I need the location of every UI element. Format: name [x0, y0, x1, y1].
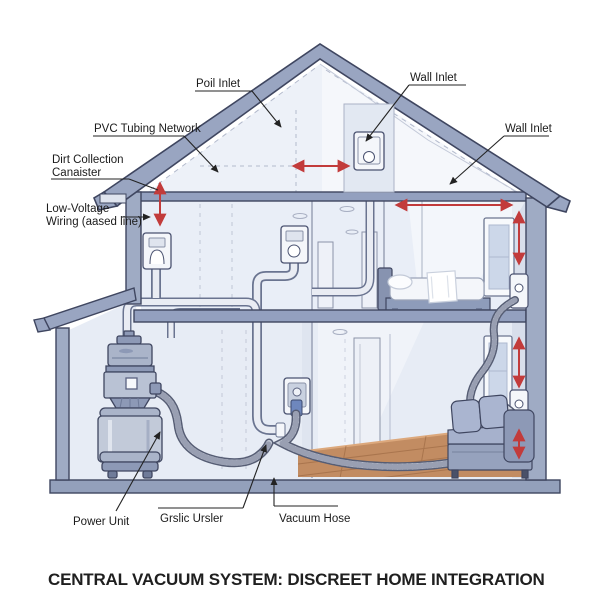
sofa-leg: [522, 470, 528, 478]
inlet-port: [150, 250, 164, 264]
label-grslic-ursler: Grslic Ursler: [160, 513, 223, 525]
sofa-back-cushion: [451, 399, 482, 433]
label-vacuum-hose: Vacuum Hose: [279, 513, 350, 525]
door-1f: [354, 338, 380, 458]
canister-ring: [100, 452, 160, 462]
wall-inlet-left-2f: [143, 233, 171, 269]
canister-base: [102, 462, 158, 471]
inlet-port: [288, 245, 300, 257]
diagram-title: CENTRAL VACUUM SYSTEM: DISCREET HOME INT…: [48, 570, 545, 589]
label-dirt-collection-1: Dirt Collection: [52, 154, 124, 166]
sofa-leg: [452, 470, 458, 478]
unit-indicator: [126, 378, 137, 389]
label-wall-inlet-top: Wall Inlet: [410, 72, 458, 84]
left-wall-extension: [56, 328, 69, 480]
unit-hose-port: [150, 383, 161, 394]
mid-floor-band: [134, 310, 526, 322]
inlet-port: [515, 284, 523, 292]
inlet-port: [364, 152, 375, 163]
label-wall-inlet-right: Wall Inlet: [505, 123, 553, 135]
inlet-port: [515, 400, 523, 408]
unit-motor-top: [108, 344, 152, 366]
door-2f-a: [318, 242, 333, 308]
left-wall-2f: [126, 192, 141, 304]
wall-inlet-hall-2f: [281, 226, 308, 263]
gutter-left: [100, 194, 126, 203]
unit-cap: [117, 336, 141, 344]
pipe-outlet-cap: [276, 423, 285, 437]
bed-pillow: [388, 275, 412, 289]
canister-foot: [108, 471, 117, 478]
label-poil-inlet: Poil Inlet: [196, 78, 241, 90]
label-power-unit: Power Unit: [73, 516, 130, 528]
diagram-canvas: Poil Inlet Wall Inlet Wall Inlet PVC Tub…: [0, 0, 600, 600]
unit-band: [106, 366, 154, 372]
central-vacuum-diagram: Poil Inlet Wall Inlet Wall Inlet PVC Tub…: [0, 0, 600, 600]
label-low-voltage-2: Wiring (aased line): [46, 216, 142, 228]
wall-inlet-attic: [344, 104, 394, 192]
label-low-voltage-1: Low-Voltage: [46, 203, 109, 215]
canister-foot: [143, 471, 152, 478]
label-dirt-collection-2: Canaister: [52, 167, 101, 179]
label-pvc-tubing: PVC Tubing Network: [94, 123, 201, 135]
attic-floor-band: [136, 192, 526, 201]
